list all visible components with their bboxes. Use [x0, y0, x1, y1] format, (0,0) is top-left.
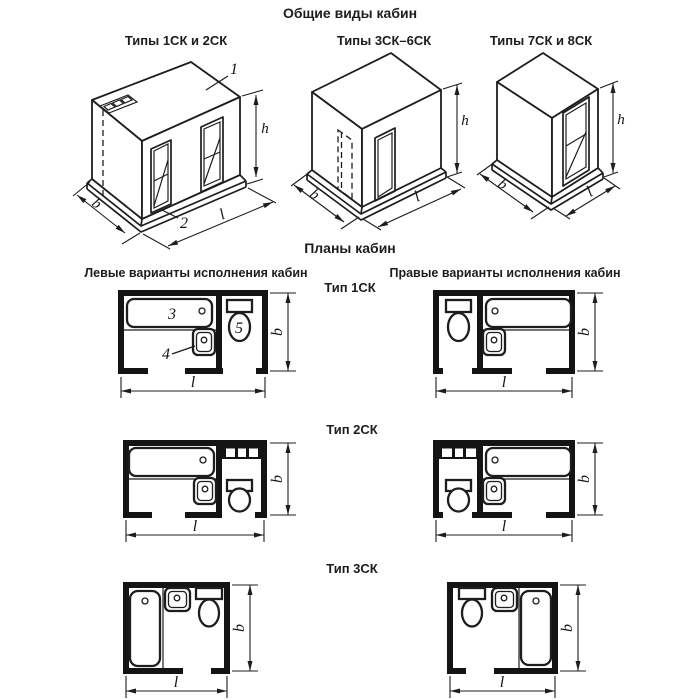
dim-length-label: l [174, 674, 179, 691]
gost-cabin-figure: Общие виды кабин Типы 1СК и 2СК Типы 3СК… [0, 0, 700, 700]
bath [130, 591, 160, 666]
dim-depth: b [576, 293, 603, 371]
plan-row2-title: Тип 2СК [326, 422, 378, 437]
dim-depth: b [576, 443, 603, 515]
callout-floor-panel: 2 [180, 215, 188, 232]
dim-depth: b [269, 443, 296, 515]
dim-depth: b [559, 585, 586, 671]
callout-toilet: 5 [235, 320, 243, 337]
washbasin [193, 329, 215, 355]
dim-length: l [436, 518, 572, 542]
iso-view-types-3ck-6ck: h b l [291, 53, 469, 230]
figure-drawing: Общие виды кабин Типы 1СК и 2СК Типы 3СК… [0, 0, 700, 700]
plans-title: Планы кабин [304, 240, 396, 256]
dim-height: h [443, 83, 469, 177]
toilet [459, 588, 485, 627]
vent-unit [439, 446, 477, 459]
bath [521, 591, 551, 665]
dim-length-label: l [191, 374, 196, 391]
plan-1ck-left: 3 4 5 l b [118, 290, 296, 398]
bath [483, 448, 571, 479]
right-variants-header: Правые варианты исполнения кабин [389, 266, 620, 280]
bath [483, 299, 571, 330]
iso2-title: Типы 3СК–6СК [337, 33, 431, 48]
dim-height: h [242, 90, 269, 184]
dim-length: l [450, 674, 555, 698]
iso1-title: Типы 1СК и 2СК [125, 33, 227, 48]
callout-roof-panel: 1 [230, 61, 238, 78]
plan-3ck-right: l b [447, 582, 586, 698]
washbasin [483, 329, 505, 355]
dim-depth-label: b [559, 624, 576, 632]
dim-depth: b [269, 293, 296, 371]
plan-2ck-right: l b [433, 440, 603, 542]
dim-depth-label: b [231, 624, 248, 632]
figure-title: Общие виды кабин [283, 5, 417, 21]
left-variants-header: Левые варианты исполнения кабин [84, 266, 307, 280]
dim-length-label: l [500, 674, 505, 691]
dim-depth-label: b [576, 475, 593, 483]
dim-height-label: h [617, 112, 625, 128]
iso3-title: Типы 7СК и 8СК [490, 33, 592, 48]
dim-depth: b [231, 585, 258, 671]
washbasin [165, 588, 190, 611]
dim-depth-label: b [495, 176, 511, 194]
washbasin [483, 478, 505, 504]
dim-length-label: l [502, 518, 507, 535]
bath [129, 448, 216, 479]
vent-unit [222, 446, 261, 459]
plan-row3-title: Тип 3СК [326, 561, 378, 576]
washbasin [194, 478, 216, 504]
iso-view-types-1ck-2ck: 1 2 h b l [73, 61, 276, 249]
dim-depth-label: b [269, 328, 286, 336]
dim-length: l [126, 674, 227, 698]
washbasin [492, 588, 517, 611]
dim-length-label: l [217, 206, 228, 224]
callout-washbasin: 4 [162, 346, 170, 363]
dim-depth-label: b [576, 328, 593, 336]
toilet [227, 480, 252, 512]
dim-length-label: l [193, 518, 198, 535]
dim-length: l [436, 374, 572, 398]
plan-row1-title: Тип 1СК [324, 280, 376, 295]
dim-length: l [126, 518, 264, 542]
plan-2ck-left: l b [123, 440, 296, 542]
dim-length: l [121, 374, 265, 398]
callout-4-leader [172, 346, 195, 354]
dim-length-label: l [502, 374, 507, 391]
dim-height-label: h [461, 113, 469, 129]
iso-view-types-7ck-8ck: h b l [477, 53, 625, 219]
dim-height-label: h [261, 121, 269, 137]
toilet [446, 300, 471, 341]
toilet [196, 588, 222, 627]
callout-bath: 3 [167, 306, 176, 323]
plan-1ck-right: l b [433, 290, 603, 398]
plan-3ck-left: l b [123, 582, 258, 698]
toilet [446, 480, 471, 512]
dim-depth-label: b [307, 186, 323, 204]
dim-height: h [600, 81, 625, 177]
dim-depth-label: b [269, 475, 286, 483]
